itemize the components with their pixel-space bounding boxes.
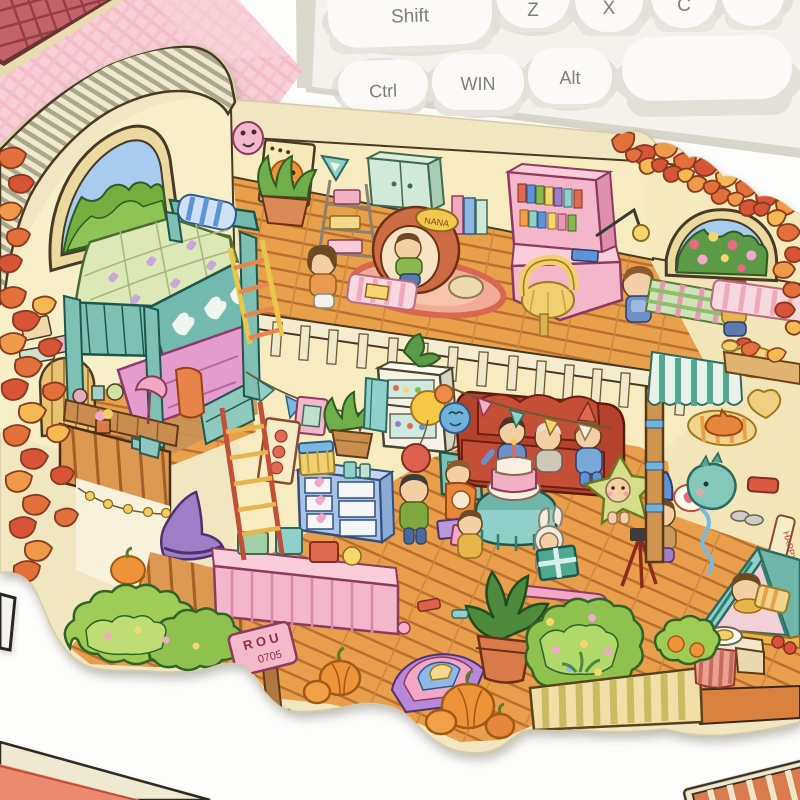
svg-text:C: C	[677, 0, 691, 16]
svg-text:Alt: Alt	[559, 68, 580, 88]
svg-text:Z: Z	[527, 0, 539, 21]
svg-text:Shift: Shift	[391, 5, 430, 27]
svg-text:X: X	[603, 0, 616, 19]
svg-text:Ctrl: Ctrl	[369, 80, 398, 101]
svg-text:WIN: WIN	[461, 74, 496, 94]
